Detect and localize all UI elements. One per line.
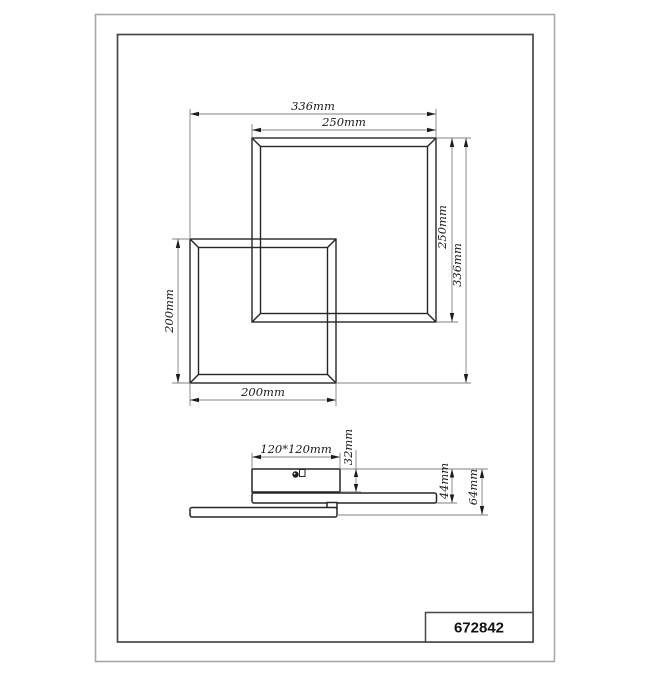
dim-label-large-frame-height: 250mm — [435, 205, 449, 250]
dim-label-small-frame-height: 200mm — [162, 289, 176, 334]
dim-large-frame-height: 250mm — [435, 138, 454, 322]
side-view: 120*120mm 32mm 44mm 64mm — [190, 429, 488, 517]
part-number: 672842 — [454, 620, 504, 637]
drawing-sheet: 336mm 250mm 250mm 336mm 200m — [0, 0, 650, 677]
dim-total-height: 64mm — [466, 469, 484, 515]
top-view: 336mm 250mm 250mm 336mm 200m — [162, 99, 471, 406]
dim-label-canopy-size: 120*120mm — [260, 442, 332, 456]
small-square-frame — [190, 239, 336, 383]
dim-label-overall-height: 336mm — [450, 243, 464, 287]
dim-small-frame-width: 200mm — [190, 385, 336, 402]
dim-label-frame-drop-height: 44mm — [437, 463, 451, 501]
upper-frame-bar — [252, 493, 437, 503]
dim-label-small-frame-width: 200mm — [240, 385, 285, 399]
large-square-frame — [252, 138, 436, 322]
dim-overall-height: 336mm — [450, 138, 468, 383]
dim-overall-width: 336mm — [190, 99, 436, 116]
dim-canopy-size: 120*120mm — [252, 442, 340, 459]
dim-label-total-height: 64mm — [466, 469, 480, 506]
dim-large-frame-width: 250mm — [252, 115, 436, 132]
dim-label-large-frame-width: 250mm — [321, 115, 366, 129]
lower-frame-bar — [190, 508, 337, 518]
dim-canopy-height: 32mm — [341, 429, 358, 492]
dim-label-overall-width: 336mm — [291, 99, 335, 113]
dim-small-frame-height: 200mm — [162, 239, 180, 383]
technical-drawing: 336mm 250mm 250mm 336mm 200m — [0, 0, 650, 677]
dim-label-canopy-height: 32mm — [341, 429, 355, 466]
title-block: 672842 — [426, 613, 534, 643]
